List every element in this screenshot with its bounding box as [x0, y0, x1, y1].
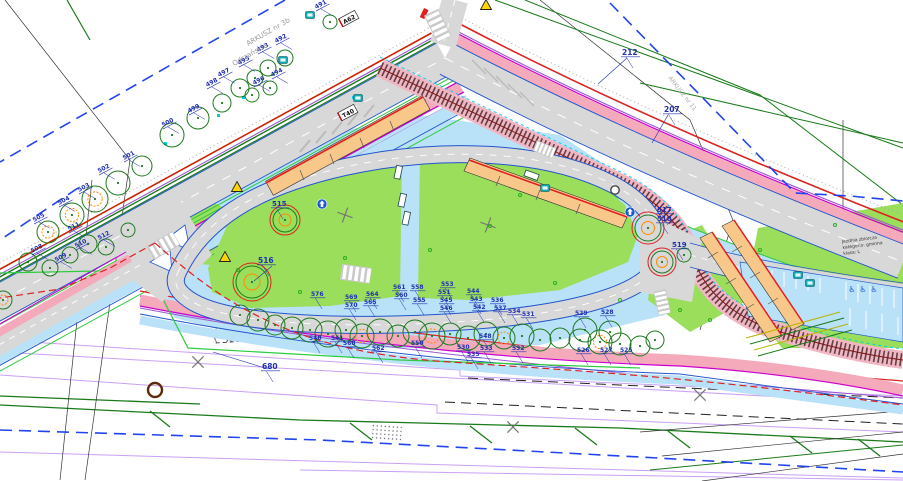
transit-stop-sign [306, 12, 315, 19]
survey-label: 497 [216, 66, 238, 89]
svg-text:525: 525 [620, 347, 633, 354]
svg-text:516: 516 [258, 256, 274, 265]
label-leader [213, 352, 268, 369]
svg-text:515: 515 [272, 200, 287, 208]
svg-text:531: 531 [522, 311, 535, 318]
sheet-label: ARKUSZ nr 3b [245, 16, 292, 48]
svg-text:528: 528 [601, 309, 614, 316]
disabled-parking-icon: ♿ [859, 285, 866, 294]
svg-text:491: 491 [314, 0, 328, 11]
survey-label: 498 [204, 76, 226, 99]
warning-triangle-sign [481, 0, 492, 10]
survey-label: 500 [160, 116, 182, 139]
survey-label: 499 [186, 102, 208, 125]
svg-text:532: 532 [512, 345, 525, 352]
survey-label: 502 [96, 162, 118, 185]
tree-symbol [213, 94, 231, 112]
svg-text:555: 555 [413, 297, 426, 304]
svg-text:529: 529 [575, 310, 588, 317]
svg-text:541: 541 [331, 335, 344, 342]
survey-label: 494 [269, 66, 291, 89]
survey-label: 207 [663, 105, 682, 125]
svg-text:569: 569 [345, 294, 358, 301]
svg-text:553: 553 [441, 281, 454, 288]
svg-text:562: 562 [372, 345, 385, 352]
tree-symbol [245, 88, 259, 102]
tree-symbol [263, 81, 277, 95]
disabled-parking-icon: ♿ [848, 285, 855, 294]
mandatory-direction-sign [317, 199, 327, 209]
svg-text:548: 548 [479, 333, 492, 340]
svg-text:561: 561 [393, 284, 406, 291]
svg-text:551: 551 [438, 289, 451, 296]
svg-text:545: 545 [440, 297, 453, 304]
tree-symbol [323, 15, 337, 29]
survey-label: 496 [251, 74, 273, 97]
tree-symbol [106, 171, 130, 195]
svg-text:543: 543 [470, 296, 483, 303]
tree-symbol [132, 156, 152, 176]
disabled-parking-icon: ♿ [870, 285, 877, 294]
survey-label: 492 [273, 32, 295, 55]
site-plan-canvas: ♿♿♿A62T40 491492493494495496497498499500… [0, 0, 903, 481]
svg-text:546: 546 [440, 305, 453, 312]
mandatory-direction-sign [625, 207, 635, 217]
tree-symbol [646, 331, 664, 349]
transit-stop-sign [541, 185, 550, 192]
sign-plate: A62 [339, 10, 359, 27]
svg-text:564: 564 [366, 291, 379, 298]
svg-text:207: 207 [664, 105, 680, 114]
transit-stop-sign [806, 280, 815, 287]
svg-text:540: 540 [309, 335, 322, 342]
svg-text:544: 544 [467, 288, 480, 295]
svg-text:212: 212 [622, 48, 638, 57]
transit-stop-sign [354, 95, 363, 102]
site-plan: ♿♿♿A62T40 491492493494495496497498499500… [0, 0, 903, 481]
transit-stop-sign [279, 57, 288, 64]
svg-text:568: 568 [343, 340, 356, 347]
svg-text:518: 518 [657, 215, 672, 223]
svg-text:560: 560 [395, 292, 408, 299]
cross-marker [502, 416, 525, 439]
svg-text:527: 527 [600, 347, 613, 354]
survey-label: 680 [261, 362, 280, 382]
survey-label: 503 [76, 181, 98, 204]
prohibition-sign [611, 186, 619, 194]
svg-text:558: 558 [411, 284, 424, 291]
survey-label: 504 [56, 194, 78, 217]
survey-label: 212 [621, 48, 640, 68]
svg-text:519: 519 [672, 241, 687, 249]
svg-text:565: 565 [364, 299, 377, 306]
svg-text:533: 533 [480, 345, 493, 352]
tree-symbol [231, 79, 249, 97]
svg-text:535: 535 [467, 351, 480, 358]
svg-text:530: 530 [457, 344, 470, 351]
svg-text:517: 517 [657, 206, 672, 214]
svg-text:542: 542 [473, 304, 486, 311]
svg-text:526: 526 [577, 347, 590, 354]
svg-text:550: 550 [411, 340, 424, 347]
svg-text:570: 570 [345, 302, 358, 309]
svg-text:537: 537 [494, 305, 507, 312]
cross-marker [187, 351, 210, 374]
svg-text:680: 680 [262, 362, 278, 371]
svg-text:534: 534 [508, 308, 521, 315]
transit-stop-sign [794, 272, 803, 279]
ballast-patch [371, 424, 402, 441]
label-leader [598, 58, 627, 84]
svg-text:576: 576 [311, 291, 324, 298]
svg-text:536: 536 [491, 297, 504, 304]
